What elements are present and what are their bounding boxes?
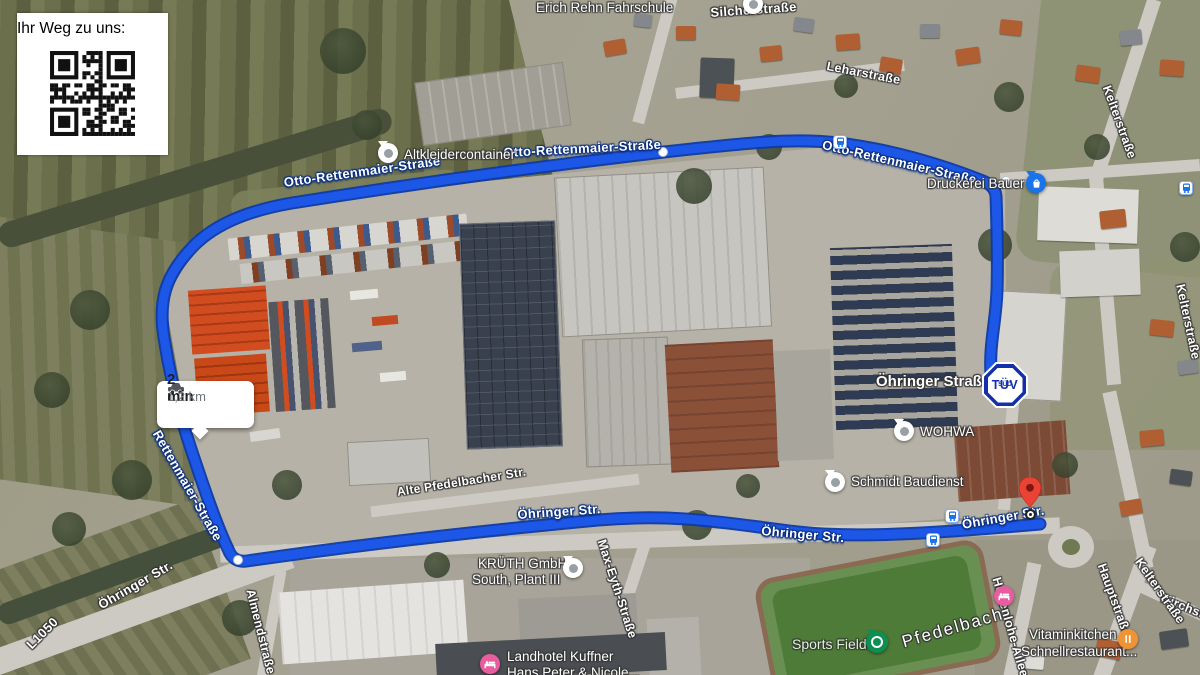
bus-stop-icon[interactable] — [1179, 181, 1193, 195]
poi-label[interactable]: WOHWA — [920, 425, 974, 439]
poi-label[interactable]: South, Plant III — [472, 573, 561, 587]
route-overlay — [0, 0, 1200, 675]
satellite-map[interactable]: Otto-Rettenmaier-Straße Otto-Rettenmaier… — [0, 0, 1200, 675]
poi-label[interactable]: KRÜTH GmbH — [478, 557, 567, 571]
route-path — [162, 141, 1040, 561]
bus-stop-icon[interactable] — [945, 509, 959, 523]
tuv-logo-subtext: SÜD — [998, 381, 1012, 389]
qr-code — [48, 49, 137, 138]
poi-label[interactable]: Druckerei Bauer — [927, 177, 1025, 191]
poi-label[interactable]: Sports Field — [792, 637, 867, 652]
poi-label[interactable]: Erich Rehn Fahrschule — [536, 1, 673, 15]
poi-label[interactable]: Schmidt Baudienst — [851, 475, 964, 489]
destination-ground-dot — [1025, 509, 1036, 520]
bus-stop-icon[interactable] — [833, 135, 847, 149]
route-distance: 1,2 km — [167, 389, 206, 404]
poi-label[interactable]: Schnellrestaurant... — [1021, 645, 1137, 659]
destination-pin-icon[interactable] — [1019, 477, 1041, 507]
route-waypoint-dot — [234, 556, 243, 565]
route-info-bubble[interactable]: 2 min 1,2 km — [157, 381, 254, 428]
bus-stop-icon[interactable] — [926, 533, 940, 547]
directions-panel: Ihr Weg zu uns: — [17, 13, 168, 155]
poi-label[interactable]: Hans Peter & Nicole... — [507, 666, 640, 675]
tuv-sued-logo[interactable]: TÜV SÜD — [982, 362, 1028, 408]
poi-label[interactable]: Altkleidercontainer — [404, 148, 515, 162]
poi-label[interactable]: Vitaminkitchen — [1029, 628, 1117, 642]
poi-label[interactable]: Landhotel Kuffner — [507, 650, 613, 664]
panel-title: Ihr Weg zu uns: — [17, 20, 125, 38]
